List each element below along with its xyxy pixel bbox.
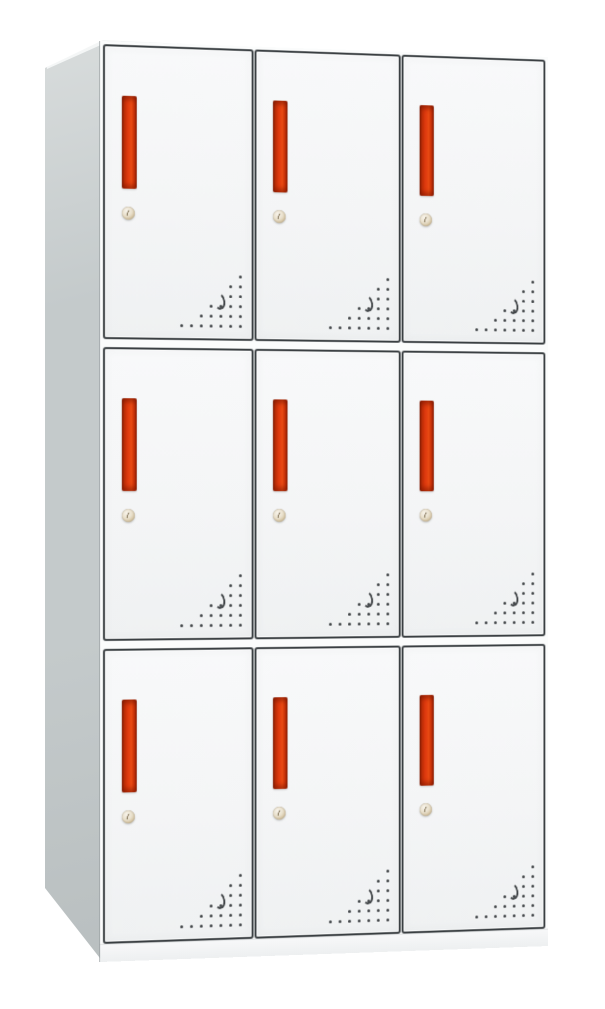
vent-hole-dot [219,324,222,327]
keyhole-lock [420,213,432,226]
vent-hole-dot [229,594,232,597]
locker-door-r1-c1 [103,44,253,340]
vent-hole-dot [485,915,488,918]
vent-hole-dot [485,622,488,625]
locker-door-r3-c2 [254,646,401,939]
vent-hole-dot [387,593,390,596]
vent-hole-dot [531,612,534,615]
vent-hole-dot [348,623,351,626]
door-handle [420,105,434,196]
cabinet-side-panel [45,26,105,966]
vent-hole-dot [180,925,183,928]
vent-hole-dot [522,583,525,586]
vent-hole-dot [348,613,351,616]
vent-hole-dot [522,319,525,322]
vent-hole-dot [339,326,342,329]
vent-hole-dot [368,326,371,329]
vent-hole-dot [503,612,506,615]
vent-hole-dot [387,327,390,330]
vent-hole-dot [358,316,361,319]
vent-hole-dot [200,324,203,327]
vent-hole-dot [229,285,232,288]
keyhole-slot [424,216,432,225]
vent-hole-dot [475,622,478,625]
vent-hole-dot [387,909,390,912]
door-handle [273,100,288,192]
vent-hole-dot [522,309,525,312]
vent-hole-dot [329,326,332,329]
vent-hole-dot [229,295,232,298]
vent-hole-dot [358,307,361,310]
keyhole-slot [424,511,432,520]
vent-hole-dot [377,603,380,606]
vent-hole-dot [239,295,242,298]
vent-hole-dot [239,614,242,617]
vent-hole-dot [513,612,516,615]
vent-hole-dot [239,923,242,926]
vent-hole-dot [348,316,351,319]
vent-crescent-hole [212,292,227,311]
vent-hole-dot [387,288,390,291]
vent-hole-dot [522,290,525,293]
vent-hole-dot [239,624,242,627]
vent-hole-dot [522,602,525,605]
vent-hole-dot [503,895,506,898]
vent-hole-dot [522,904,525,907]
vent-hole-dot [503,621,506,624]
vent-hole-dot [531,621,534,624]
vent-hole-dot [239,594,242,597]
vent-hole-dot [368,613,371,616]
vent-hole-dot [200,314,203,317]
vent-hole-dot [531,280,534,283]
vent-hole-dot [494,318,497,321]
vent-hole-dot [239,315,242,318]
vent-hole-dot [522,875,525,878]
door-grid [100,44,548,944]
keyhole-lock [420,508,432,521]
vent-hole-dot [522,914,525,917]
vent-hole-dot [475,328,478,331]
vent-hole-dot [229,894,232,897]
vent-hole-dot [190,925,193,928]
vent-hole-dot [531,904,534,907]
door-handle [273,697,288,789]
vent-crescent-hole [506,589,520,608]
vent-hole-dot [229,924,232,927]
door-handle [122,96,137,189]
vent-hole-dot [348,920,351,923]
locker-door-r1-c3 [402,55,545,345]
vent-hole-dot [229,305,232,308]
vent-hole-dot [522,895,525,898]
vent-hole-dot [522,621,525,624]
vent-hole-dot [387,297,390,300]
vent-hole-dot [348,910,351,913]
vent-holes [472,573,534,626]
vent-hole-dot [209,304,212,307]
keyhole-slot [276,212,284,221]
vent-hole-dot [368,623,371,626]
vent-hole-dot [377,623,380,626]
vent-hole-dot [229,884,232,887]
vent-crescent-hole [506,296,520,314]
vent-hole-dot [485,328,488,331]
vent-hole-dot [209,904,212,907]
vent-hole-dot [239,913,242,916]
locker-door-r3-c1 [103,648,253,944]
vent-hole-dot [229,584,232,587]
vent-holes [472,865,534,919]
vent-hole-dot [513,319,516,322]
keyhole-slot [276,511,284,520]
vent-hole-dot [209,924,212,927]
vent-hole-dot [377,880,380,883]
vent-hole-dot [531,602,534,605]
vent-hole-dot [522,612,525,615]
product-photo [0,0,605,1009]
vent-hole-dot [531,319,534,322]
vent-hole-dot [387,574,390,577]
vent-hole-dot [368,909,371,912]
vent-hole-dot [329,623,332,626]
vent-hole-dot [358,326,361,329]
vent-hole-dot [522,592,525,595]
vent-hole-dot [229,324,232,327]
vent-hole-dot [229,904,232,907]
vent-hole-dot [494,612,497,615]
vent-crescent-hole [212,591,227,610]
locker-door-r1-c2 [254,49,401,342]
keyhole-lock [420,803,432,816]
vent-hole-dot [229,604,232,607]
vent-hole-dot [387,879,390,882]
keyhole-lock [273,210,286,223]
vent-hole-dot [239,904,242,907]
vent-hole-dot [219,924,222,927]
vent-hole-dot [513,914,516,917]
vent-hole-dot [180,324,183,327]
locker-door-r3-c3 [402,644,545,933]
vent-hole-dot [503,905,506,908]
keyhole-slot [276,809,284,818]
vent-hole-dot [377,297,380,300]
vent-hole-dot [239,604,242,607]
vent-hole-dot [387,278,390,281]
vent-hole-dot [531,583,534,586]
vent-hole-dot [531,894,534,897]
vent-hole-dot [200,614,203,617]
vent-crescent-hole [360,294,375,313]
vent-holes [326,277,389,331]
vent-hole-dot [522,329,525,332]
vent-hole-dot [531,592,534,595]
vent-hole-dot [531,329,534,332]
vent-hole-dot [368,919,371,922]
vent-hole-dot [494,915,497,918]
vent-hole-dot [358,603,361,606]
vent-hole-dot [377,317,380,320]
vent-hole-dot [339,920,342,923]
vent-hole-dot [387,870,390,873]
vent-hole-dot [358,623,361,626]
vent-hole-dot [200,925,203,928]
vent-hole-dot [513,621,516,624]
vent-hole-dot [239,584,242,587]
vent-hole-dot [229,914,232,917]
vent-crescent-hole [212,891,227,910]
vent-hole-dot [387,317,390,320]
keyhole-slot [424,806,432,815]
vent-hole-dot [229,624,232,627]
vent-hole-dot [531,573,534,576]
door-handle [420,400,434,491]
keyhole-lock [122,810,135,823]
vent-hole-dot [387,918,390,921]
locker-door-r2-c3 [402,350,545,638]
vent-hole-dot [387,603,390,606]
vent-hole-dot [513,328,516,331]
vent-hole-dot [219,314,222,317]
locker-cabinet [45,26,575,971]
vent-hole-dot [522,885,525,888]
vent-hole-dot [209,624,212,627]
vent-holes [326,870,389,925]
vent-hole-dot [180,625,183,628]
vent-holes [177,575,242,629]
vent-hole-dot [239,305,242,308]
vent-hole-dot [209,314,212,317]
vent-hole-dot [229,315,232,318]
vent-hole-dot [209,914,212,917]
vent-hole-dot [503,328,506,331]
vent-hole-dot [503,602,506,605]
vent-crescent-hole [506,882,520,901]
vent-hole-dot [387,613,390,616]
vent-hole-dot [209,604,212,607]
vent-hole-dot [387,307,390,310]
vent-hole-dot [513,905,516,908]
vent-hole-dot [329,920,332,923]
vent-hole-dot [387,623,390,626]
vent-hole-dot [377,326,380,329]
keyhole-slot [126,813,134,822]
keyhole-lock [122,509,135,522]
vent-hole-dot [358,900,361,903]
keyhole-lock [273,509,286,522]
vent-hole-dot [239,285,242,288]
door-handle [122,700,137,793]
vent-holes [177,874,242,930]
vent-hole-dot [229,614,232,617]
vent-crescent-hole [360,887,375,906]
vent-hole-dot [209,614,212,617]
vent-crescent-hole [360,590,375,609]
vent-hole-dot [190,624,193,627]
vent-hole-dot [219,914,222,917]
vent-hole-dot [209,324,212,327]
door-handle [273,399,288,491]
vent-hole-dot [348,326,351,329]
vent-hole-dot [531,290,534,293]
keyhole-slot [126,511,134,521]
vent-hole-dot [377,899,380,902]
vent-hole-dot [377,593,380,596]
vent-hole-dot [377,889,380,892]
vent-hole-dot [239,575,242,578]
vent-hole-dot [475,915,478,918]
vent-hole-dot [239,275,242,278]
keyhole-lock [273,807,286,820]
vent-hole-dot [531,865,534,868]
vent-hole-dot [531,875,534,878]
vent-holes [472,279,534,332]
vent-hole-dot [358,919,361,922]
vent-hole-dot [377,584,380,587]
vent-hole-dot [339,623,342,626]
vent-hole-dot [200,915,203,918]
vent-hole-dot [377,613,380,616]
vent-hole-dot [239,874,242,877]
vent-hole-dot [200,624,203,627]
vent-hole-dot [377,287,380,290]
vent-hole-dot [239,894,242,897]
vent-hole-dot [503,319,506,322]
vent-hole-dot [368,317,371,320]
vent-hole-dot [531,885,534,888]
door-handle [122,398,137,491]
vent-hole-dot [531,914,534,917]
vent-hole-dot [387,889,390,892]
vent-hole-dot [377,919,380,922]
vent-hole-dot [377,307,380,310]
cabinet-front-face [100,41,548,962]
vent-hole-dot [377,909,380,912]
vent-hole-dot [531,309,534,312]
vent-hole-dot [503,309,506,312]
locker-door-r2-c1 [103,347,253,642]
vent-hole-dot [387,899,390,902]
keyhole-slot [126,209,134,219]
vent-hole-dot [219,624,222,627]
door-handle [420,695,434,786]
vent-hole-dot [358,910,361,913]
vent-hole-dot [494,905,497,908]
keyhole-lock [122,207,135,220]
vent-hole-dot [239,884,242,887]
vent-hole-dot [522,299,525,302]
vent-hole-dot [387,583,390,586]
vent-hole-dot [219,614,222,617]
locker-door-r2-c2 [254,349,401,640]
vent-hole-dot [358,613,361,616]
vent-hole-dot [494,328,497,331]
vent-holes [177,274,242,329]
vent-hole-dot [503,915,506,918]
vent-hole-dot [190,324,193,327]
vent-holes [326,574,389,627]
vent-hole-dot [494,622,497,625]
vent-hole-dot [239,325,242,328]
vent-hole-dot [531,300,534,303]
